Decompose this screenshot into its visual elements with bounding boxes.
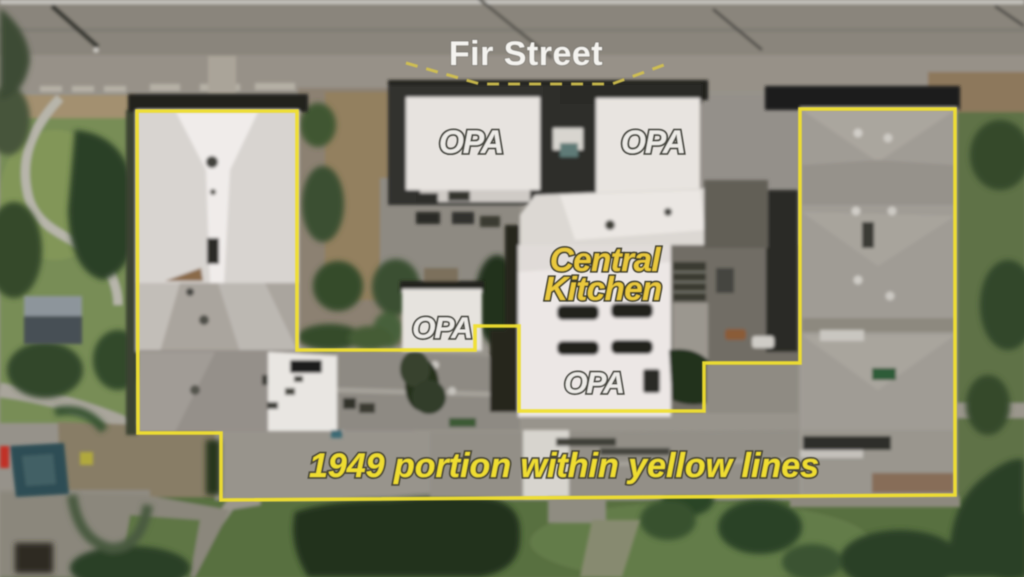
svg-text:OPA: OPA [439, 124, 503, 160]
svg-text:Kitchen: Kitchen [544, 270, 662, 307]
svg-text:OPA: OPA [564, 367, 624, 400]
svg-text:OPA: OPA [412, 312, 472, 345]
svg-text:1949 portion within yellow lin: 1949 portion within yellow lines [309, 447, 819, 485]
svg-text:OPA: OPA [621, 124, 685, 160]
svg-text:Fir Street: Fir Street [449, 35, 603, 73]
